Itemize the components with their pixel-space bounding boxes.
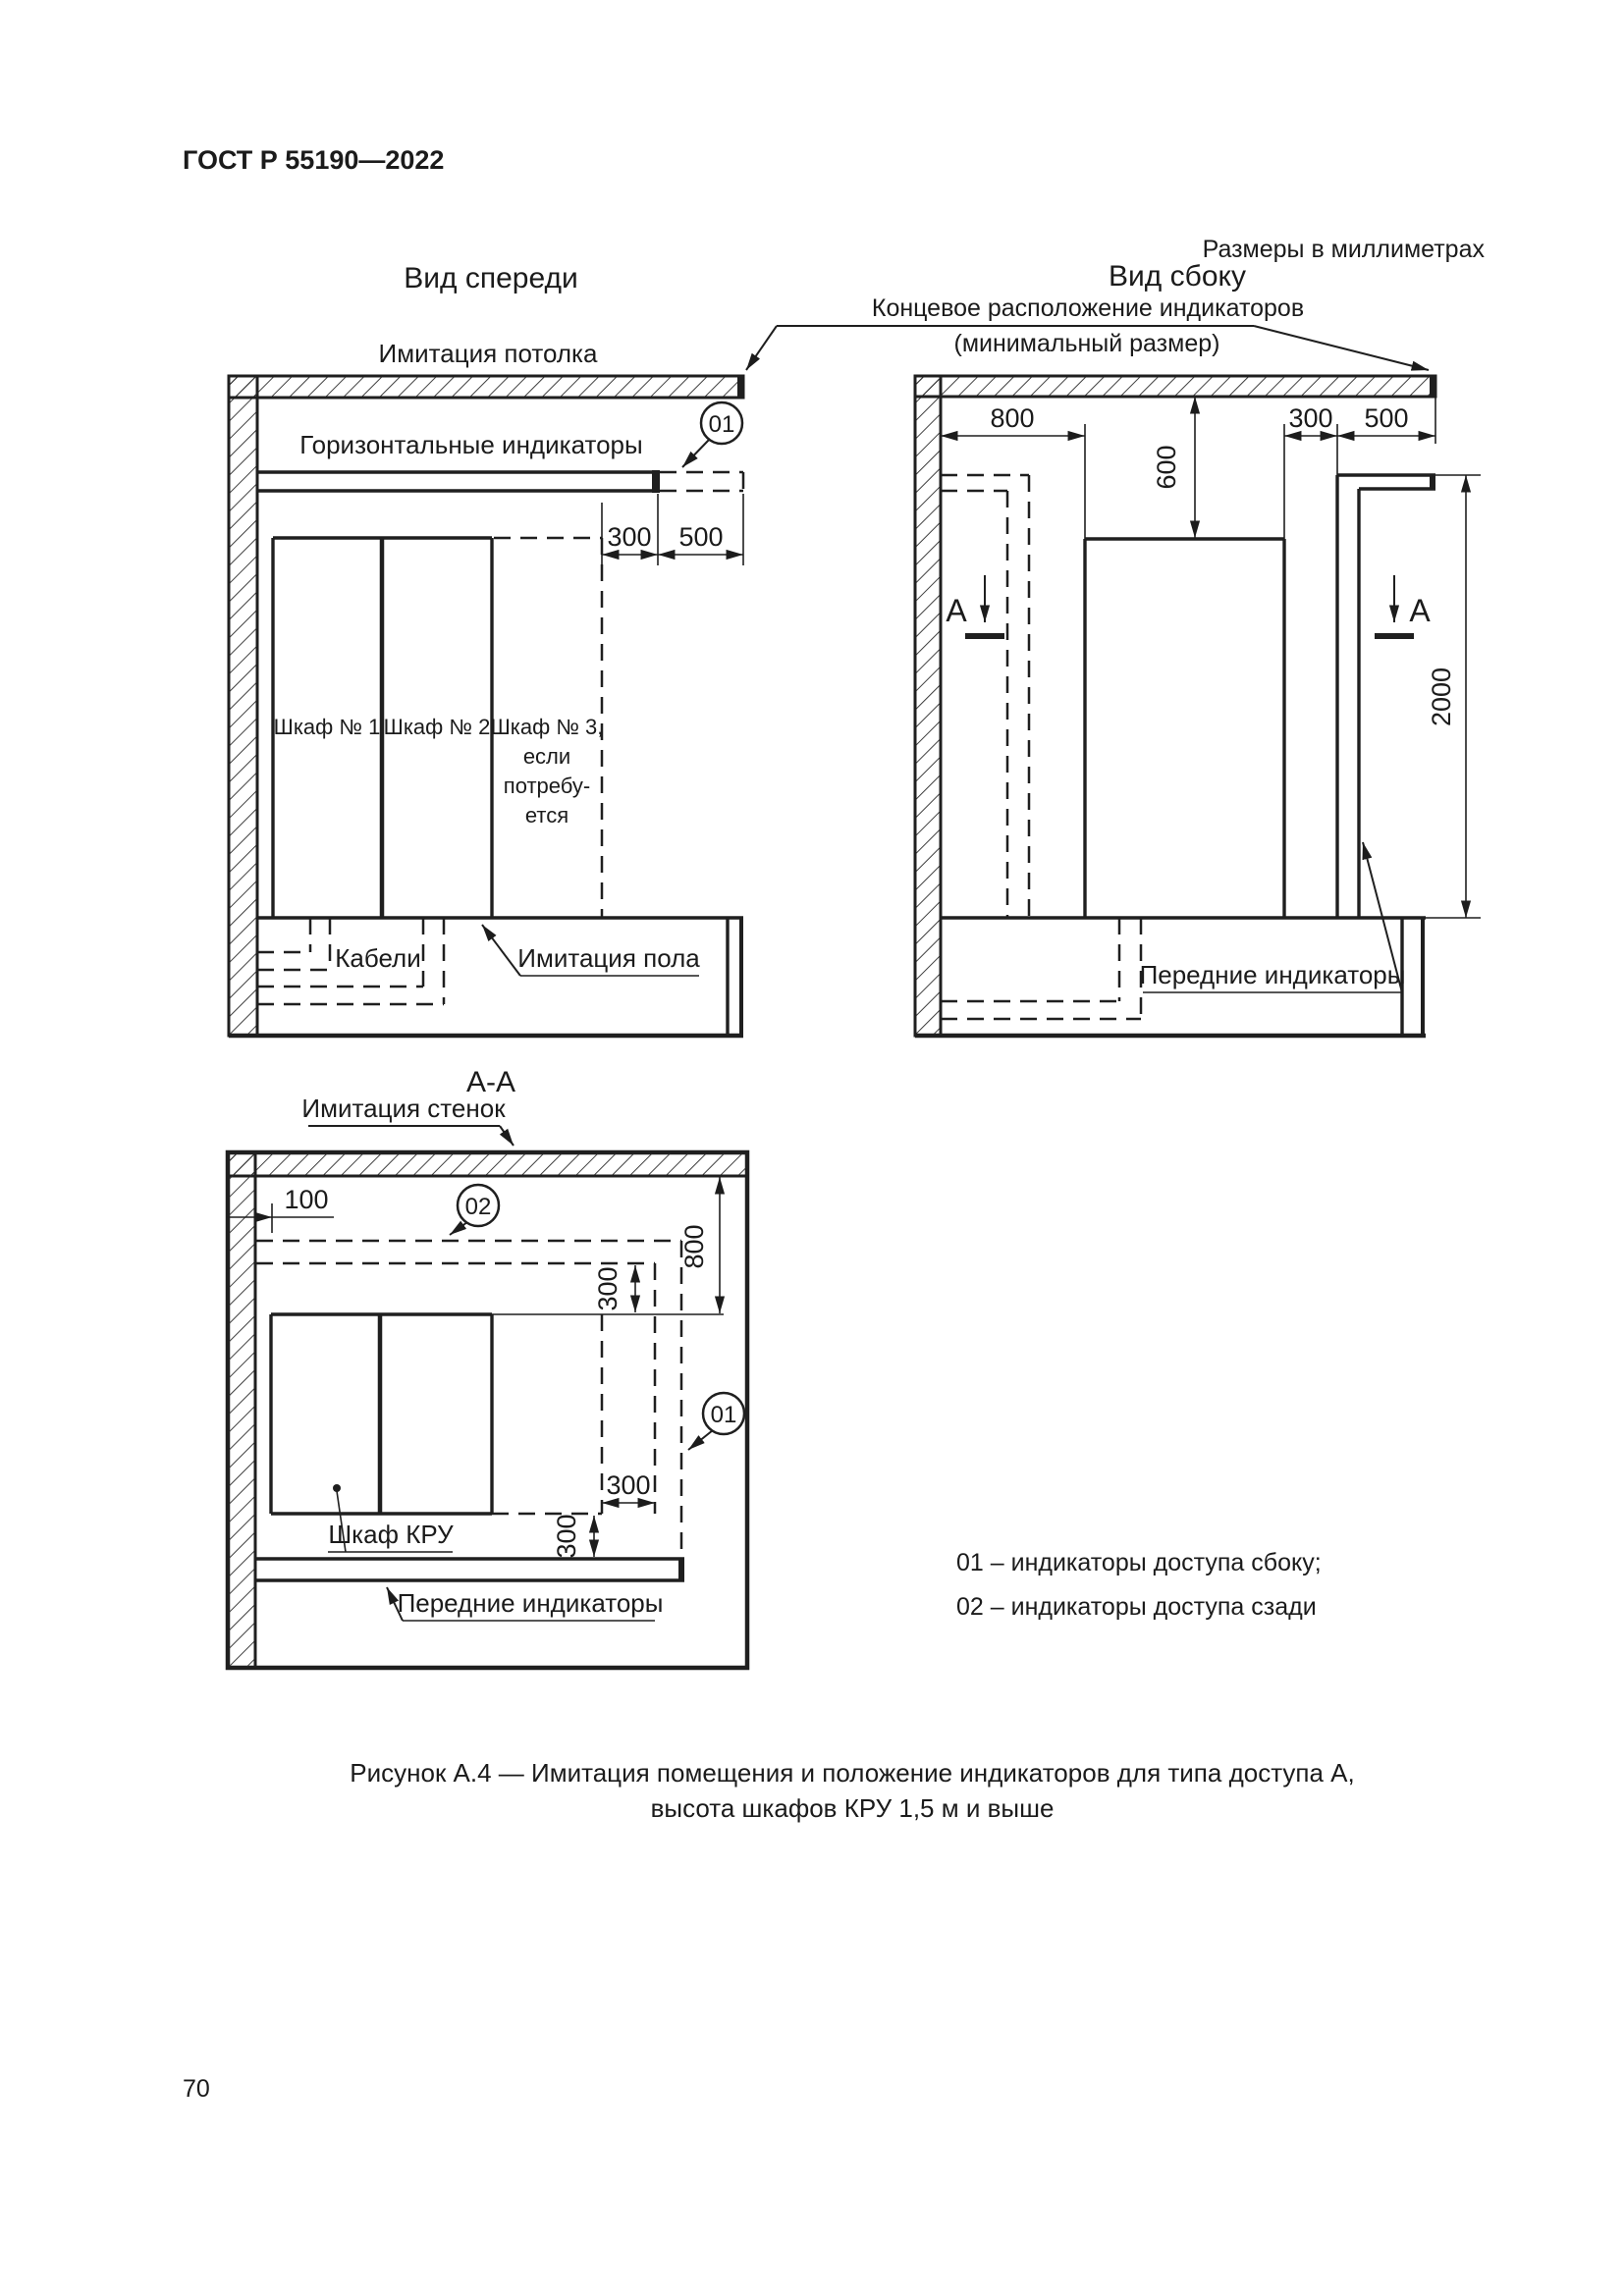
walls-imitation-label: Имитация стенок [301,1094,514,1146]
front-view-title: Вид спереди [404,262,578,294]
svg-text:Передние индикаторы: Передние индикаторы [398,1588,664,1618]
cabinet-3-label-3: потребу- [504,774,590,798]
section-callout-01: 01 [688,1393,744,1450]
side-front-indicators [1337,475,1435,918]
section-view: А-А Имитация стенок 100 02 [226,1066,747,1668]
section-cabinets [271,1314,602,1514]
side-dim-600: 600 [1152,397,1195,538]
units-note: Размеры в миллиметрах [1203,236,1486,263]
legend-item-01: 01 – индикаторы доступа сбоку; [956,1549,1322,1576]
svg-text:Имитация пола: Имитация пола [517,943,700,973]
caption-line-1: Рисунок А.4 — Имитация помещения и полож… [350,1758,1354,1788]
section-dim-800: 800 [679,1177,720,1313]
figure-caption: Рисунок А.4 — Имитация помещения и полож… [350,1758,1354,1823]
svg-text:100: 100 [284,1185,328,1214]
technical-drawing: ГОСТ Р 55190—2022 Размеры в миллиметрах … [0,0,1624,2296]
horizontal-indicators-label: Горизонтальные индикаторы [299,430,642,459]
cabinet-2-label: Шкаф № 2 [384,715,491,739]
side-cabinet [1085,539,1284,918]
page-number: 70 [183,2075,210,2103]
standard-code: ГОСТ Р 55190—2022 [183,145,444,175]
side-rear-dashed [941,475,1029,918]
svg-text:(минимальный размер): (минимальный размер) [954,330,1220,357]
front-floor [229,918,743,1036]
section-callout-02: 02 [450,1185,499,1235]
svg-text:300: 300 [593,1266,623,1310]
side-view: Вид сбоку Концевое расположение индикато… [746,260,1481,1036]
section-side-wall-hatch [228,1152,255,1668]
end-position-note: Концевое расположение индикаторов (миним… [746,294,1429,370]
side-dim-800: 800 [990,403,1034,433]
cables-label: Кабели [335,943,421,973]
section-dim-300-front: 300 [552,1514,594,1558]
cabinet-1-label: Шкаф № 1 [274,715,381,739]
front-wall-hatch [229,376,257,1036]
svg-text:02: 02 [465,1194,492,1220]
section-front-indicators-label: Передние индикаторы [387,1587,663,1621]
section-arrow-left: А [946,575,1004,636]
section-rear-wall-hatch [228,1152,747,1176]
svg-text:01: 01 [709,411,735,438]
front-dim-500: 500 [678,522,723,552]
section-front-indicators-bar [256,1559,684,1580]
front-callout-01: 01 [682,402,742,467]
front-floor-label: Имитация пола [482,925,700,976]
cabinet-3-label-1: Шкаф № 3, [491,715,604,739]
side-dim-300: 300 [1288,403,1332,433]
svg-text:600: 600 [1152,445,1181,489]
cabinet-3-label-4: ется [525,803,568,828]
svg-text:2000: 2000 [1427,667,1456,726]
front-ceiling-hatch [229,376,743,398]
svg-text:300: 300 [552,1514,581,1558]
legend-item-02: 02 – индикаторы доступа сзади [956,1593,1317,1621]
section-arrow-right: А [1375,575,1431,636]
legend: 01 – индикаторы доступа сбоку; 02 – инди… [956,1549,1322,1621]
side-view-title: Вид сбоку [1109,260,1246,293]
front-dim-300-500: 300 500 [602,494,743,565]
svg-text:Концевое расположение индикато: Концевое расположение индикаторов [872,294,1304,322]
section-cabinet-label: Шкаф КРУ [328,1484,454,1552]
caption-line-2: высота шкафов КРУ 1,5 м и выше [651,1793,1055,1823]
section-dim-300-side: 300 [602,1470,655,1503]
ceiling-imitation-label: Имитация потолка [379,339,598,368]
side-dim-top: 800 300 500 [941,398,1435,539]
document-page: ГОСТ Р 55190—2022 Размеры в миллиметрах … [0,0,1624,2296]
svg-text:Передние индикаторы: Передние индикаторы [1140,960,1406,989]
side-dim-2000: 2000 [1426,475,1481,918]
section-dim-300-rear: 300 [593,1265,635,1312]
side-wall-hatch [915,376,941,1036]
front-cables: Кабели [257,918,444,1004]
cabinet-3-label-2: если [523,744,570,769]
svg-text:01: 01 [711,1402,737,1428]
front-view: Вид спереди Имитация потолка Горизонталь… [229,262,743,1036]
svg-text:Шкаф КРУ: Шкаф КРУ [328,1520,454,1549]
side-ceiling-hatch [915,376,1435,397]
svg-text:А: А [946,593,967,628]
svg-text:А: А [1409,593,1431,628]
side-cables [941,918,1141,1019]
front-cabinets: Шкаф № 1 Шкаф № 2 Шкаф № 3, если потребу… [273,538,603,918]
svg-text:300: 300 [606,1470,650,1500]
front-horizontal-indicator-bar [257,470,743,493]
front-dim-300: 300 [607,522,651,552]
svg-text:800: 800 [679,1224,709,1268]
svg-text:Имитация стенок: Имитация стенок [301,1094,506,1123]
side-dim-500: 500 [1364,403,1408,433]
